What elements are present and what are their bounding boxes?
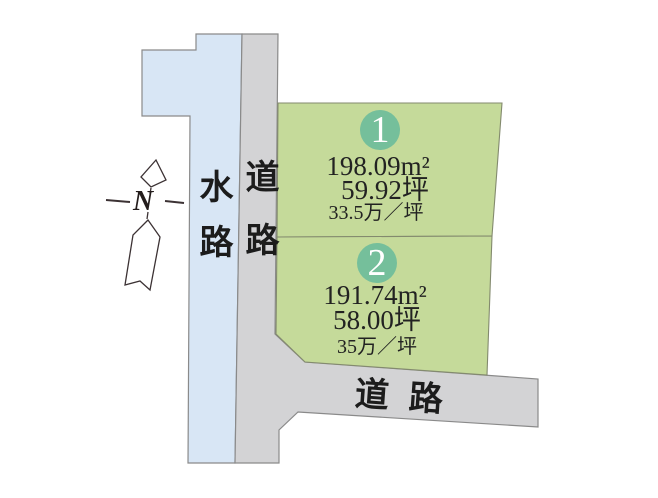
compass-kite-shape (141, 160, 166, 187)
plot-1-unit-price: 33.5万／坪 (329, 203, 424, 223)
plot-2-area-tsubo: 58.00坪 (333, 307, 421, 334)
compass-dash-right (165, 201, 184, 203)
plot-2-badge: 2 (357, 243, 397, 283)
road-horizontal-label: 道路 (354, 378, 464, 419)
compass-north-arrow (106, 160, 184, 290)
road-vertical-label: 道路 (241, 159, 275, 285)
compass-n-label: N (133, 188, 153, 216)
plot-1-area-tsubo: 59.92坪 (341, 177, 429, 204)
plot-1-number: 1 (371, 111, 390, 149)
plot-1-badge: 1 (360, 110, 400, 150)
compass-dash-left (106, 200, 130, 202)
site-plan-shapes (0, 0, 658, 498)
plot-2-unit-price: 35万／坪 (337, 337, 417, 357)
compass-ribbon-shape (125, 220, 160, 290)
waterway-label: 水路 (195, 169, 229, 279)
plot-2-number: 2 (368, 244, 387, 282)
site-plan-diagram: N 水路 道路 道路 1 198.09m² 59.92坪 33.5万／坪 2 1… (0, 0, 658, 498)
